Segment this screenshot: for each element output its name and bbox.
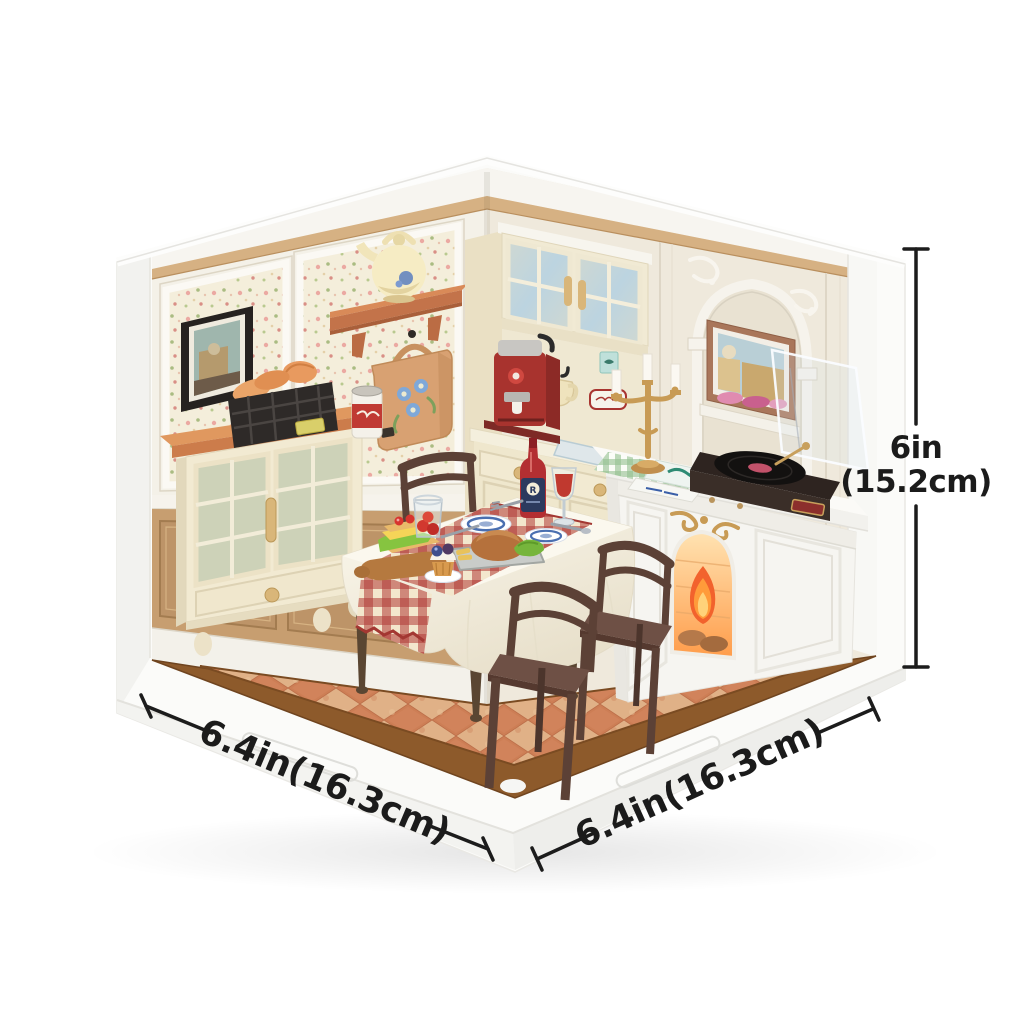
hutch-glass-door xyxy=(578,256,640,344)
record-player-lid xyxy=(772,350,868,470)
hutch-glass-door xyxy=(508,241,570,330)
strawberry-glass xyxy=(414,496,442,538)
miniature-room-illustration: R xyxy=(0,0,1024,1024)
base-notch xyxy=(500,779,526,793)
hutch-handle xyxy=(578,280,586,310)
shell-left-edge xyxy=(117,249,150,712)
height-dimension-label-in: 6in xyxy=(890,430,943,466)
hutch-handle xyxy=(564,276,572,306)
fire-log xyxy=(700,636,728,652)
sideboard-glass-door xyxy=(276,440,350,568)
drawer-knob xyxy=(265,588,279,602)
product-dimension-image: R xyxy=(0,0,1024,1024)
firebox xyxy=(672,532,734,658)
height-dimension-label-cm: (15.2cm) xyxy=(840,464,992,500)
sideboard-glass-door xyxy=(196,454,268,585)
sideboard-handle xyxy=(266,498,276,542)
jam-jar xyxy=(352,386,382,438)
svg-text:R: R xyxy=(530,486,537,496)
